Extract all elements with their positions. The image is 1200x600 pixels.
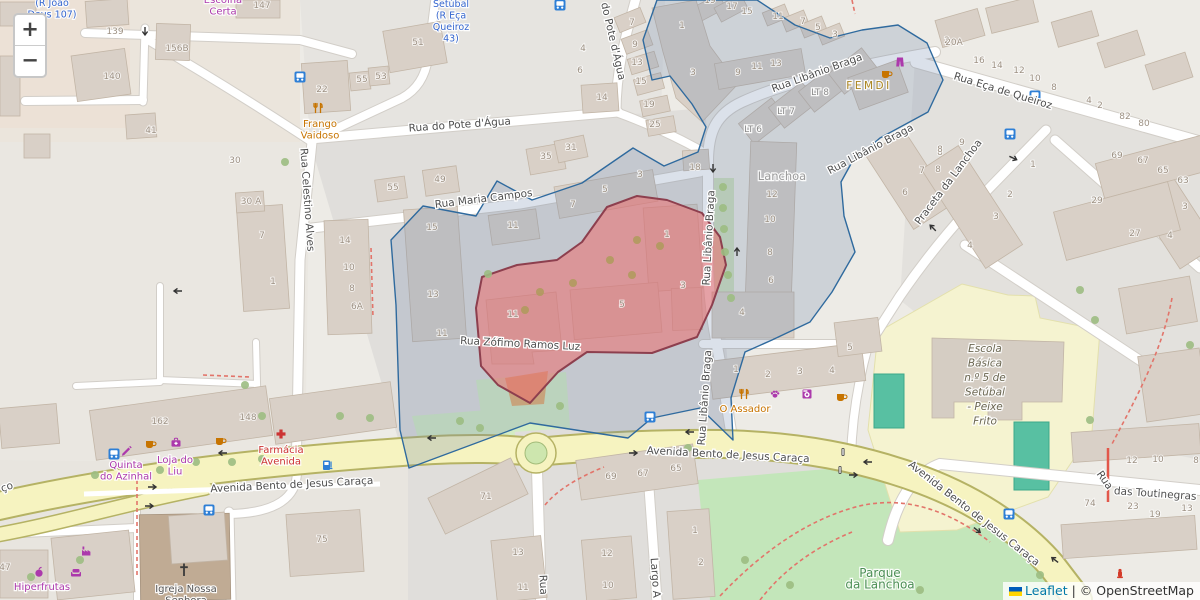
- map-svg: 139140156B147413030 A71141086A2251555355…: [0, 0, 1200, 600]
- house-number: 7: [259, 231, 265, 241]
- poi-label: Frango: [303, 119, 337, 130]
- house-number: 47: [0, 563, 11, 573]
- poi-label: Lanchoa: [758, 169, 806, 183]
- house-number: 31: [565, 143, 576, 153]
- tree-icon: [484, 270, 492, 278]
- house-number: 15: [426, 223, 437, 233]
- house-number: 7: [629, 18, 635, 28]
- house-number: 10: [764, 215, 776, 225]
- house-number: 69: [605, 472, 617, 482]
- house-number: 6: [902, 188, 908, 198]
- poi-label: Queiroz: [433, 22, 469, 33]
- house-number: 11: [507, 310, 518, 320]
- house-number: 1: [733, 365, 739, 375]
- house-number: 53: [375, 72, 386, 82]
- house-number: 1: [679, 21, 685, 31]
- house-number: 3: [680, 281, 686, 291]
- house-number: 13: [631, 58, 642, 68]
- ukraine-flag-icon: [1009, 587, 1022, 596]
- house-number: 29: [1091, 196, 1103, 206]
- poi-label: O Assador: [719, 404, 771, 415]
- house-number: 41: [145, 126, 156, 136]
- house-number: 74: [1084, 499, 1096, 509]
- house-number: 2: [1097, 101, 1103, 111]
- house-number: 67: [637, 469, 648, 479]
- house-number: 3: [637, 170, 643, 180]
- house-number: 22: [316, 85, 327, 95]
- poi-label: Liu: [168, 467, 183, 478]
- house-number: 9: [735, 68, 741, 78]
- poi-label: Setúbal: [433, 0, 469, 10]
- tree-icon: [656, 242, 664, 250]
- bus-stop-icon: [1005, 129, 1016, 140]
- house-number: 27: [1129, 229, 1140, 239]
- house-number: 5: [847, 343, 853, 353]
- house-number: 8: [937, 145, 943, 155]
- house-number: 140: [103, 72, 120, 82]
- house-number: 67: [1137, 156, 1148, 166]
- house-number: 15: [741, 7, 752, 17]
- house-number: 55: [387, 183, 398, 193]
- poi-label: Escolha: [204, 0, 242, 6]
- house-number: 19: [643, 100, 655, 110]
- tree-icon: [727, 294, 735, 302]
- tree-icon: [569, 279, 577, 287]
- tree-icon: [721, 248, 729, 256]
- house-number: 35: [540, 152, 551, 162]
- tree-icon: [366, 414, 374, 422]
- poi-label: Frito: [973, 416, 997, 428]
- house-number: 49: [434, 175, 446, 185]
- house-number: 65: [670, 464, 681, 474]
- house-number: 147: [253, 1, 270, 11]
- house-number: 13: [770, 59, 781, 69]
- tree-icon: [633, 236, 641, 244]
- bus-stop-icon: [1004, 509, 1015, 520]
- tree-icon: [786, 581, 794, 589]
- tree-icon: [27, 573, 35, 581]
- house-number: 10: [602, 581, 614, 591]
- poi-label: da Lanchoa: [845, 578, 914, 592]
- tree-icon: [156, 466, 164, 474]
- poi-label: Senhora: [165, 596, 207, 600]
- house-number: 5: [815, 23, 821, 33]
- house-number: 8: [1051, 83, 1057, 93]
- tree-icon: [1036, 571, 1044, 579]
- poi-label: LT 8: [811, 88, 829, 98]
- house-number: 51: [412, 38, 423, 48]
- house-number: 4: [829, 366, 835, 376]
- house-number: 13: [427, 290, 438, 300]
- house-number: 10: [1029, 74, 1041, 84]
- house-number: 6: [577, 66, 583, 76]
- house-number: 4: [1086, 96, 1092, 106]
- poi-label: do Azinhal: [100, 472, 152, 483]
- house-number: 162: [151, 417, 168, 427]
- house-number: 13: [1181, 504, 1192, 514]
- osm-attribution[interactable]: © OpenStreetMap: [1080, 583, 1194, 598]
- tree-icon: [1086, 416, 1094, 424]
- house-number: 16: [973, 56, 985, 66]
- house-number: 3: [1182, 202, 1188, 212]
- house-number: 80: [1138, 119, 1150, 129]
- attribution-separator: |: [1068, 583, 1080, 598]
- tree-icon: [916, 586, 924, 594]
- zoom-out-button[interactable]: −: [15, 45, 45, 76]
- house-number: 14: [339, 236, 351, 246]
- house-number: 3: [797, 367, 803, 377]
- poi-label: Básica: [968, 358, 1002, 370]
- zoom-control: + −: [13, 13, 47, 78]
- house-number: 75: [316, 535, 327, 545]
- fuel-station-icon: [323, 461, 332, 471]
- house-number: 11: [507, 221, 518, 231]
- house-number: 148: [239, 413, 256, 423]
- tree-icon: [720, 225, 728, 233]
- house-number: 11: [751, 62, 762, 72]
- house-number: 7: [800, 17, 806, 27]
- tree-icon: [719, 183, 727, 191]
- bus-stop-icon: [204, 505, 215, 516]
- poi-label: - Peixe: [967, 401, 1003, 413]
- house-number: 12: [1013, 66, 1024, 76]
- house-number: 4: [739, 308, 745, 318]
- house-number: 9: [632, 40, 638, 50]
- poi-label: LT 6: [744, 125, 762, 135]
- poi-label: n.º 5 de: [964, 372, 1005, 384]
- house-number: 12: [601, 549, 612, 559]
- house-number: 1: [692, 526, 698, 536]
- house-number: 30 A: [241, 197, 262, 207]
- house-number: 2: [765, 370, 771, 380]
- roundabout-center: [525, 442, 547, 464]
- house-number: 6: [768, 276, 774, 286]
- house-number: 25: [649, 120, 660, 130]
- poi-label: (R Eça: [436, 11, 466, 22]
- house-number: 15: [635, 77, 646, 87]
- tree-icon: [628, 271, 636, 279]
- poi-label: Avenida: [261, 457, 301, 468]
- tree-icon: [76, 556, 84, 564]
- house-number: 82: [1119, 112, 1130, 122]
- tree-icon: [741, 556, 749, 564]
- house-number: 2: [698, 558, 704, 568]
- house-number: 19: [704, 0, 716, 6]
- poi-label: Vaidoso: [301, 131, 340, 142]
- house-number: 14: [596, 93, 608, 103]
- house-number: 3: [690, 68, 696, 78]
- house-number: 17: [726, 2, 737, 12]
- house-number: 4: [1167, 231, 1173, 241]
- zoom-in-button[interactable]: +: [15, 15, 45, 45]
- house-number: 4: [580, 44, 586, 54]
- house-number: 63: [1177, 176, 1188, 186]
- house-number: 12: [766, 190, 777, 200]
- house-number: 7: [570, 200, 576, 210]
- traffic-signal-icon: [838, 466, 841, 474]
- tree-icon: [241, 381, 249, 389]
- house-number: 8: [767, 248, 773, 258]
- house-number: 7: [919, 166, 925, 176]
- poi-label: 43): [443, 34, 459, 45]
- house-number: 69: [1111, 151, 1123, 161]
- tree-icon: [336, 412, 344, 420]
- house-number: 20A: [945, 38, 963, 48]
- poi-label: Igreja Nossa: [155, 584, 217, 595]
- traffic-signal-icon: [841, 448, 844, 456]
- house-number: 9: [959, 138, 965, 148]
- tree-icon: [228, 458, 236, 466]
- poi-label: Escola: [968, 343, 1002, 355]
- leaflet-link[interactable]: Leaflet: [1025, 583, 1068, 598]
- house-number: 71: [480, 492, 491, 502]
- house-number: 65: [1157, 166, 1168, 176]
- house-number: 1: [270, 277, 276, 287]
- map-canvas[interactable]: 139140156B147413030 A71141086A2251555355…: [0, 0, 1200, 600]
- house-number: 156B: [165, 44, 188, 54]
- house-number: 18: [689, 163, 701, 173]
- house-number: 8: [935, 165, 941, 175]
- house-number: 19: [1149, 510, 1161, 520]
- tree-icon: [724, 271, 732, 279]
- poi-label: FEMDI: [846, 80, 891, 92]
- tree-icon: [606, 256, 614, 264]
- tree-icon: [1076, 286, 1084, 294]
- tree-icon: [192, 458, 200, 466]
- bus-stop-icon: [645, 412, 656, 423]
- house-number: 11: [772, 12, 783, 22]
- street-label: Rua: [536, 575, 549, 596]
- house-number: 4: [967, 241, 973, 251]
- house-number: 5: [619, 300, 625, 310]
- house-number: 10: [1152, 455, 1164, 465]
- house-number: 10: [343, 263, 355, 273]
- tree-icon: [536, 288, 544, 296]
- house-number: 8: [1193, 456, 1199, 466]
- house-number: 11: [436, 329, 447, 339]
- bus-stop-icon: [295, 72, 306, 83]
- house-number: 13: [512, 548, 523, 558]
- laundry-icon: [803, 390, 812, 399]
- house-number: 6A: [351, 302, 364, 312]
- house-number: 139: [106, 27, 123, 37]
- house-number: 14: [991, 61, 1003, 71]
- tree-icon: [719, 204, 727, 212]
- tree-icon: [1091, 316, 1099, 324]
- house-number: 30: [229, 156, 241, 166]
- house-number: 11: [517, 583, 528, 593]
- house-number: 2: [1007, 190, 1013, 200]
- house-number: 8: [349, 284, 355, 294]
- house-number: 1: [1030, 160, 1036, 170]
- poi-label: (R João: [35, 0, 69, 9]
- house-number: 55: [356, 75, 367, 85]
- bus-stop-icon: [109, 449, 120, 460]
- tree-icon: [521, 306, 529, 314]
- house-number: 1: [664, 230, 670, 240]
- tree-icon: [281, 158, 289, 166]
- house-number: 23: [1127, 502, 1138, 512]
- tree-icon: [91, 471, 99, 479]
- tree-icon: [258, 412, 266, 420]
- poi-label: LT 7: [777, 107, 795, 117]
- tree-icon: [1186, 341, 1194, 349]
- attribution-bar: Leaflet | © OpenStreetMap: [1003, 582, 1200, 600]
- house-number: 12: [1126, 456, 1137, 466]
- house-number: 3: [993, 212, 999, 222]
- tree-icon: [556, 402, 564, 410]
- poi-label: Certa: [209, 7, 236, 18]
- tree-icon: [456, 417, 464, 425]
- poi-label: Farmácia: [258, 444, 303, 456]
- sports-pitch: [874, 374, 904, 428]
- tree-icon: [476, 424, 484, 432]
- poi-label: Setúbal: [965, 387, 1005, 399]
- bus-stop-icon: [555, 0, 566, 11]
- house-number: 3: [832, 30, 838, 40]
- poi-label: Loja do: [157, 455, 193, 466]
- poi-label: Quinta: [109, 460, 142, 471]
- poi-label: Hiperfrutas: [14, 582, 70, 593]
- house-number: 5: [602, 185, 608, 195]
